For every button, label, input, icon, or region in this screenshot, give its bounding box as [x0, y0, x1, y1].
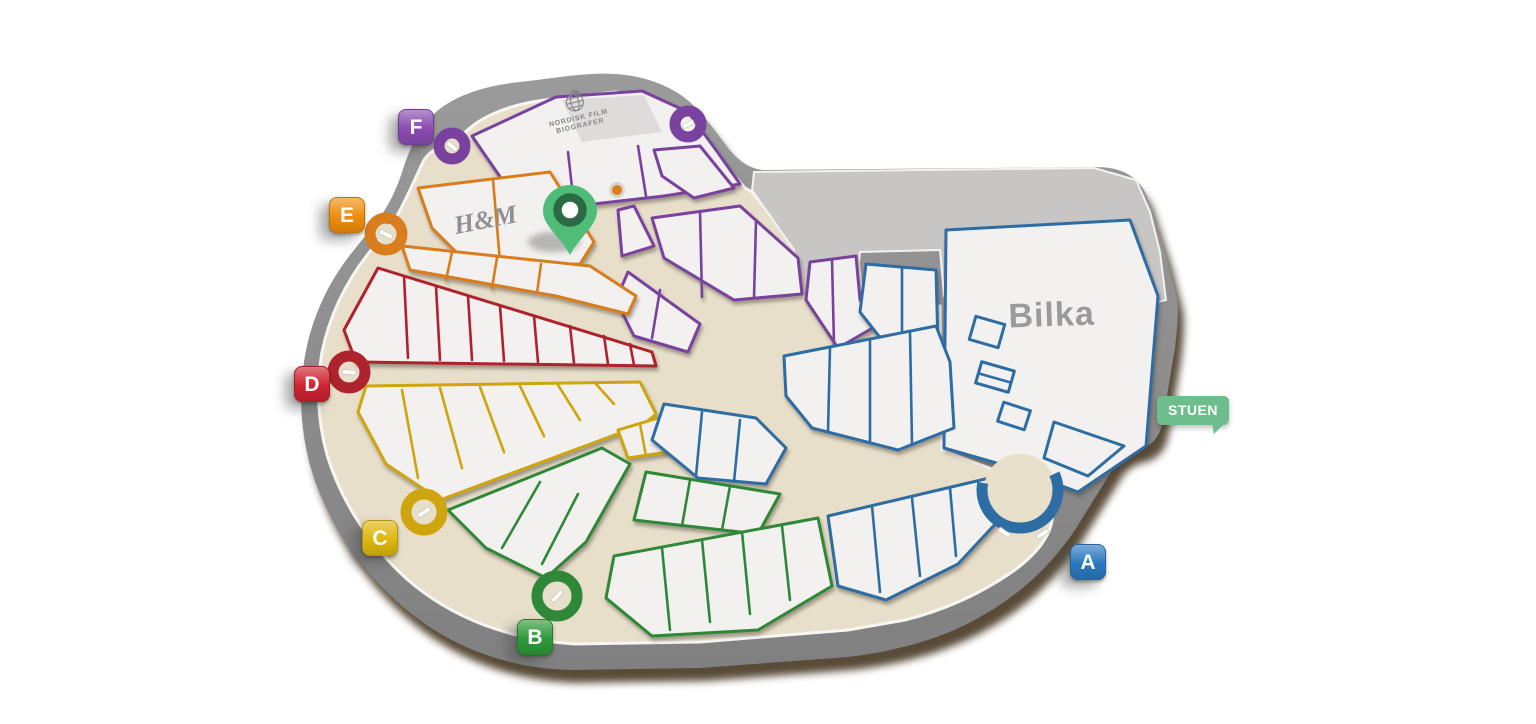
poi-dot-core	[612, 185, 622, 195]
poi-dot[interactable]	[609, 182, 625, 198]
entrance-badge-e[interactable]: E	[329, 197, 365, 233]
entrance-badge-a[interactable]: A	[1070, 544, 1106, 580]
entrance-badge-b[interactable]: B	[517, 619, 553, 655]
entrance-badge-c[interactable]: C	[362, 520, 398, 556]
entrance-badge-d[interactable]: D	[294, 366, 330, 402]
bilka-label: Bilka	[1008, 295, 1096, 336]
door-icon	[342, 369, 356, 375]
mall-floorplan-view: Bilka H&M NORDISK FILM BIOGRAFER A B C D…	[0, 0, 1536, 724]
pin-ring	[558, 198, 583, 223]
mall-map: Bilka H&M NORDISK FILM BIOGRAFER	[0, 0, 1536, 724]
entrance-badge-f[interactable]: F	[398, 109, 434, 145]
floor-tag-stuen[interactable]: STUEN	[1157, 396, 1229, 425]
